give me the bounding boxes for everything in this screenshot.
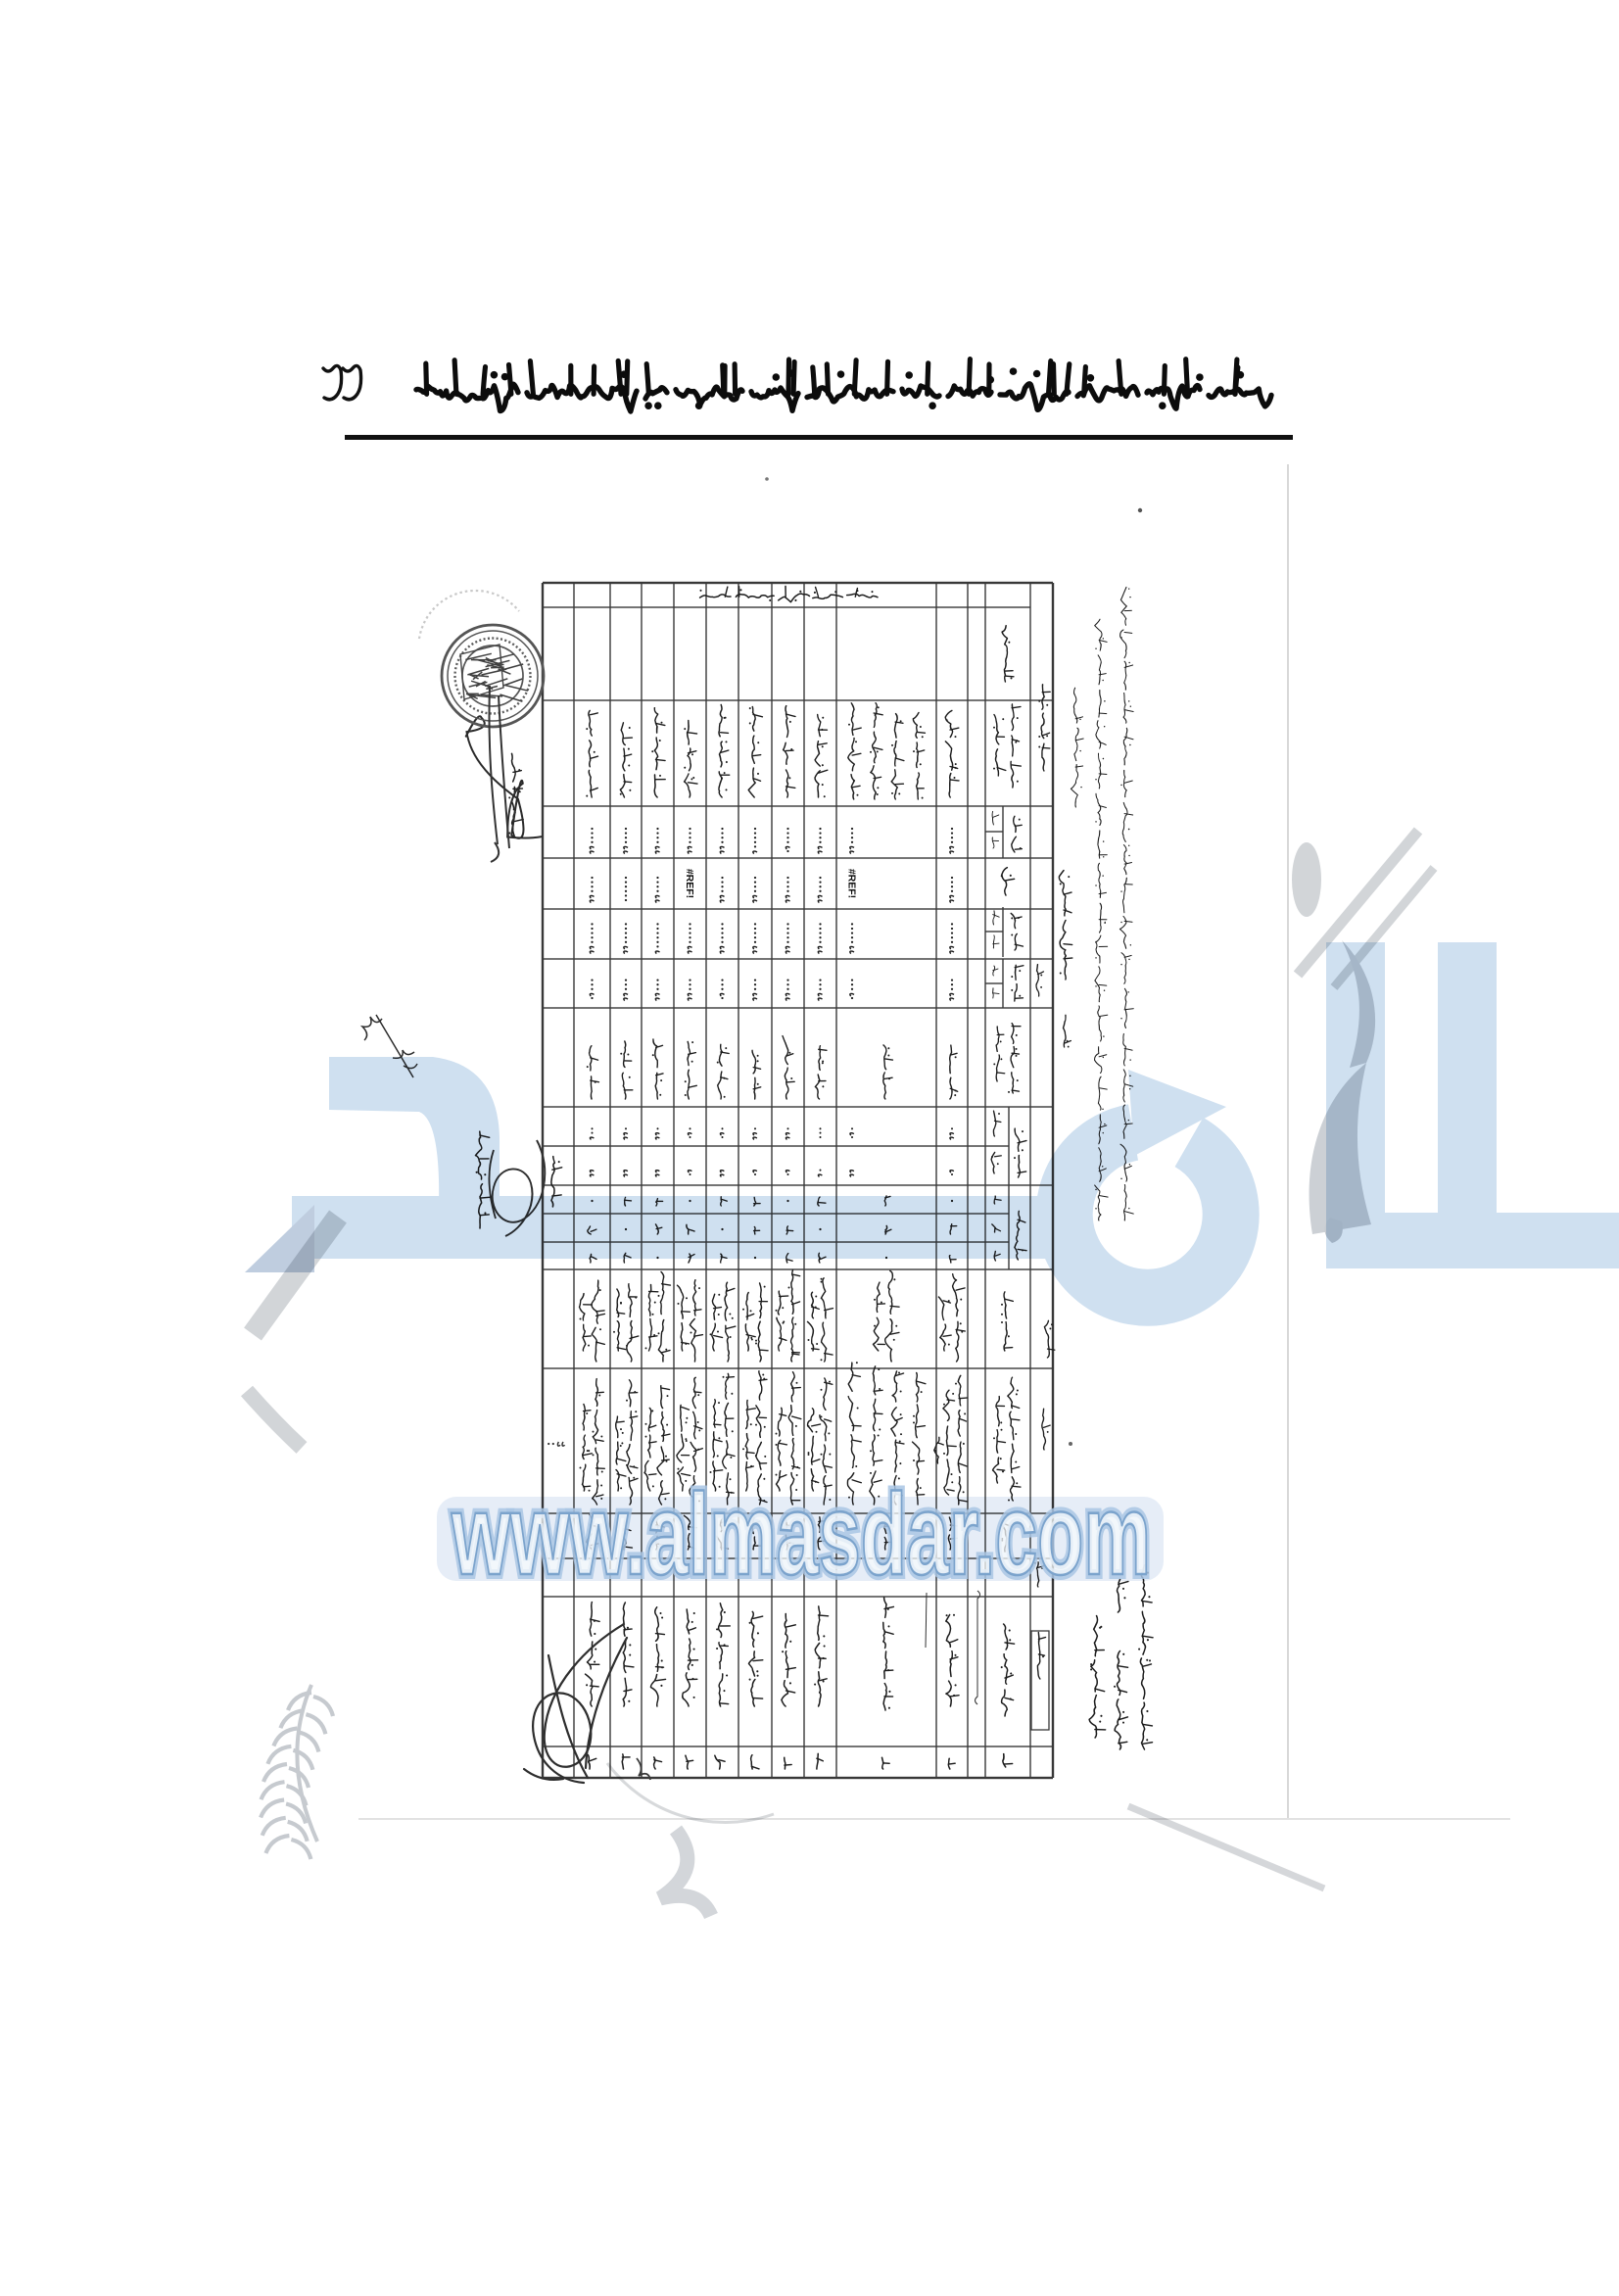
- svg-text:www.almasdar.com: www.almasdar.com: [451, 1470, 1151, 1600]
- svg-text:#REF!: #REF!: [846, 869, 858, 898]
- svg-text:#REF!: #REF!: [684, 869, 695, 898]
